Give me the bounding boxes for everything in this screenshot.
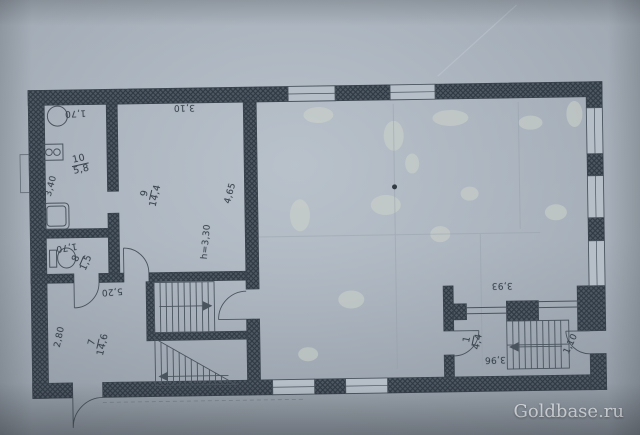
dim-stair-hall-width: 3,93 — [491, 280, 512, 290]
door-room9 — [123, 248, 148, 273]
door-hall — [218, 291, 246, 319]
reference-line — [103, 399, 303, 402]
stair-direction-arrow-left — [510, 343, 518, 351]
paper-crease — [437, 5, 518, 76]
floor-plan-photo: 1,70 3,10 3,40 4,65 h=3,30 1,70 0,9 5,20… — [0, 0, 640, 435]
ink-speck — [392, 184, 397, 189]
exterior-flue — [20, 155, 30, 193]
floor-plan-svg — [0, 0, 640, 435]
stove-symbol — [43, 144, 63, 160]
stair-direction-arrow-right — [203, 302, 211, 310]
walls — [28, 82, 607, 399]
floor-plan-drawing: 1,70 3,10 3,40 4,65 h=3,30 1,70 0,9 5,20… — [0, 0, 640, 435]
staircase-right — [507, 320, 570, 369]
staircase-left-upper — [154, 282, 215, 333]
dim-kitchen-width: 1,70 — [64, 107, 86, 118]
dim-room9-width: 3,10 — [174, 102, 195, 112]
stair-direction-arrow-left — [159, 372, 167, 380]
door-wc — [74, 282, 99, 307]
dim-stair-hall-length: 3,96 — [484, 354, 506, 365]
whiteout-patches — [288, 101, 586, 362]
staircase-left-lower — [155, 337, 236, 385]
watermark: Goldbase.ru — [513, 401, 624, 422]
sink-symbol — [44, 203, 69, 229]
door-exterior-bottom — [73, 397, 103, 427]
dim-room7-length: 5,20 — [101, 285, 123, 297]
